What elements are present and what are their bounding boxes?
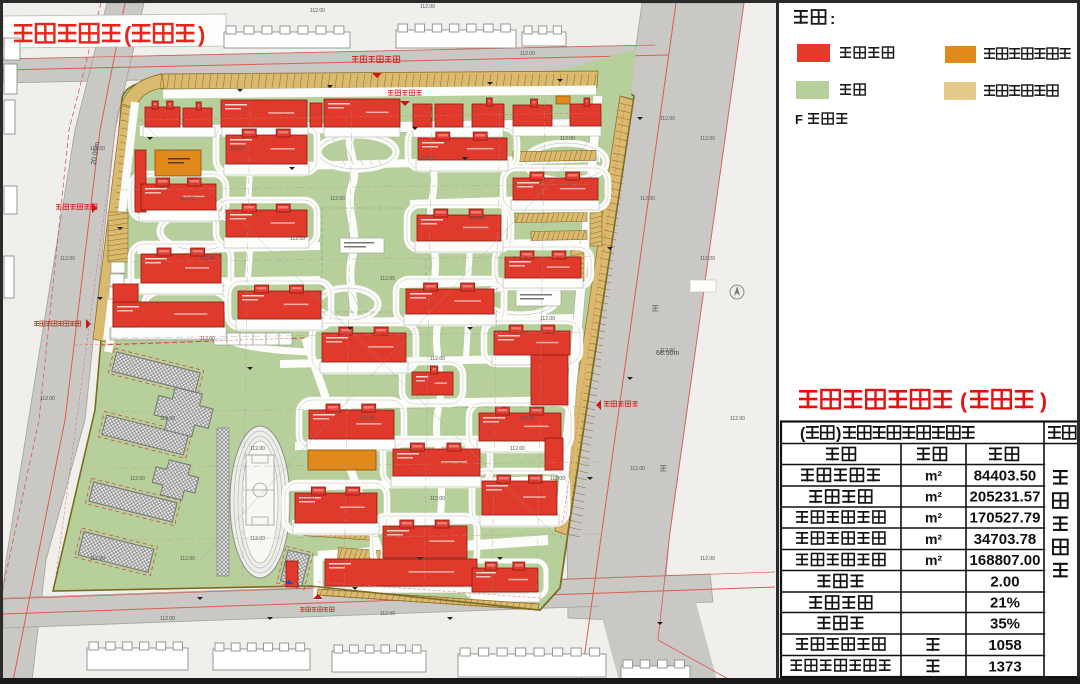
svg-text:1373: 1373 <box>988 658 1021 675</box>
svg-text:112.00: 112.00 <box>380 611 395 617</box>
svg-text:112.00: 112.00 <box>290 236 305 242</box>
svg-text:1058: 1058 <box>988 637 1021 654</box>
svg-text:170527.79: 170527.79 <box>970 510 1041 527</box>
svg-text:112.00: 112.00 <box>560 136 575 142</box>
svg-text:205231.57: 205231.57 <box>970 489 1041 506</box>
svg-text:68.50m: 68.50m <box>656 350 680 357</box>
svg-text:m²: m² <box>925 531 942 547</box>
svg-text:112.00: 112.00 <box>250 446 265 452</box>
svg-text:112.00: 112.00 <box>180 196 195 202</box>
svg-text:112.00: 112.00 <box>90 556 105 562</box>
svg-text:): ) <box>198 22 205 47</box>
svg-text:112.00: 112.00 <box>360 416 375 422</box>
svg-text:2.00: 2.00 <box>990 573 1019 590</box>
svg-text:m²: m² <box>925 467 942 483</box>
svg-text:112.00: 112.00 <box>310 8 325 14</box>
svg-text:112.00: 112.00 <box>420 4 435 10</box>
svg-text:112.00: 112.00 <box>700 136 715 142</box>
svg-text:112.00: 112.00 <box>470 216 485 222</box>
svg-text:112.00: 112.00 <box>520 51 535 57</box>
svg-text:m²: m² <box>925 489 942 505</box>
svg-text:112.00: 112.00 <box>160 616 175 622</box>
svg-text:112.00: 112.00 <box>660 116 675 122</box>
svg-text:m²: m² <box>925 552 942 568</box>
svg-text:112.00: 112.00 <box>230 146 245 152</box>
svg-text:112.00: 112.00 <box>640 196 655 202</box>
svg-text:112.00: 112.00 <box>540 316 555 322</box>
svg-text:112.00: 112.00 <box>510 446 525 452</box>
svg-text:(: ( <box>800 426 806 443</box>
svg-text:112.00: 112.00 <box>250 536 265 542</box>
svg-text:112.00: 112.00 <box>730 416 745 422</box>
svg-text:F: F <box>795 112 803 127</box>
svg-text:): ) <box>836 426 841 443</box>
svg-text:112.00: 112.00 <box>700 256 715 262</box>
svg-text:(: ( <box>124 22 132 47</box>
svg-text:112.00: 112.00 <box>380 276 395 282</box>
svg-text:84403.50: 84403.50 <box>974 467 1037 484</box>
svg-text:112.00: 112.00 <box>550 476 565 482</box>
svg-text::: : <box>830 11 835 28</box>
svg-text:112.00: 112.00 <box>40 396 55 402</box>
svg-text:): ) <box>1040 390 1047 413</box>
svg-text:34703.78: 34703.78 <box>974 531 1037 548</box>
svg-text:168807.00: 168807.00 <box>970 552 1041 569</box>
svg-text:112.00: 112.00 <box>430 496 445 502</box>
svg-text:112.00: 112.00 <box>420 156 435 162</box>
svg-text:112.00: 112.00 <box>430 356 445 362</box>
svg-text:21%: 21% <box>990 594 1020 611</box>
svg-text:112.00: 112.00 <box>60 256 75 262</box>
svg-text:112.00: 112.00 <box>520 416 535 422</box>
svg-text:112.00: 112.00 <box>160 416 175 422</box>
svg-text:(: ( <box>960 390 967 413</box>
svg-text:112.00: 112.00 <box>330 196 345 202</box>
svg-text:112.00: 112.00 <box>130 476 145 482</box>
svg-text:112.00: 112.00 <box>700 556 715 562</box>
svg-text:m²: m² <box>925 510 942 526</box>
svg-text:35%: 35% <box>990 615 1020 632</box>
svg-text:112.00: 112.00 <box>300 496 315 502</box>
svg-text:112.00: 112.00 <box>630 466 645 472</box>
svg-text:112.00: 112.00 <box>180 556 195 562</box>
svg-text:112.00: 112.00 <box>200 256 215 262</box>
